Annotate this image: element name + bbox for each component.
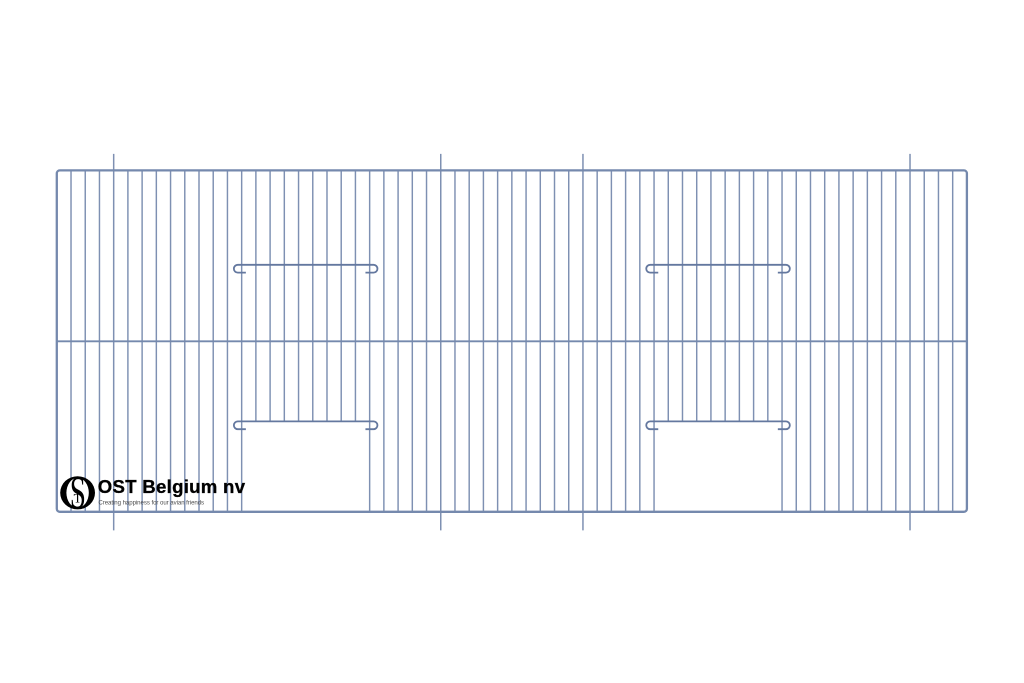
svg-text:Creating happiness for our avi: Creating happiness for our avian friends <box>98 499 204 506</box>
svg-text:T: T <box>74 490 82 505</box>
svg-text:OST Belgium nv: OST Belgium nv <box>98 476 246 497</box>
